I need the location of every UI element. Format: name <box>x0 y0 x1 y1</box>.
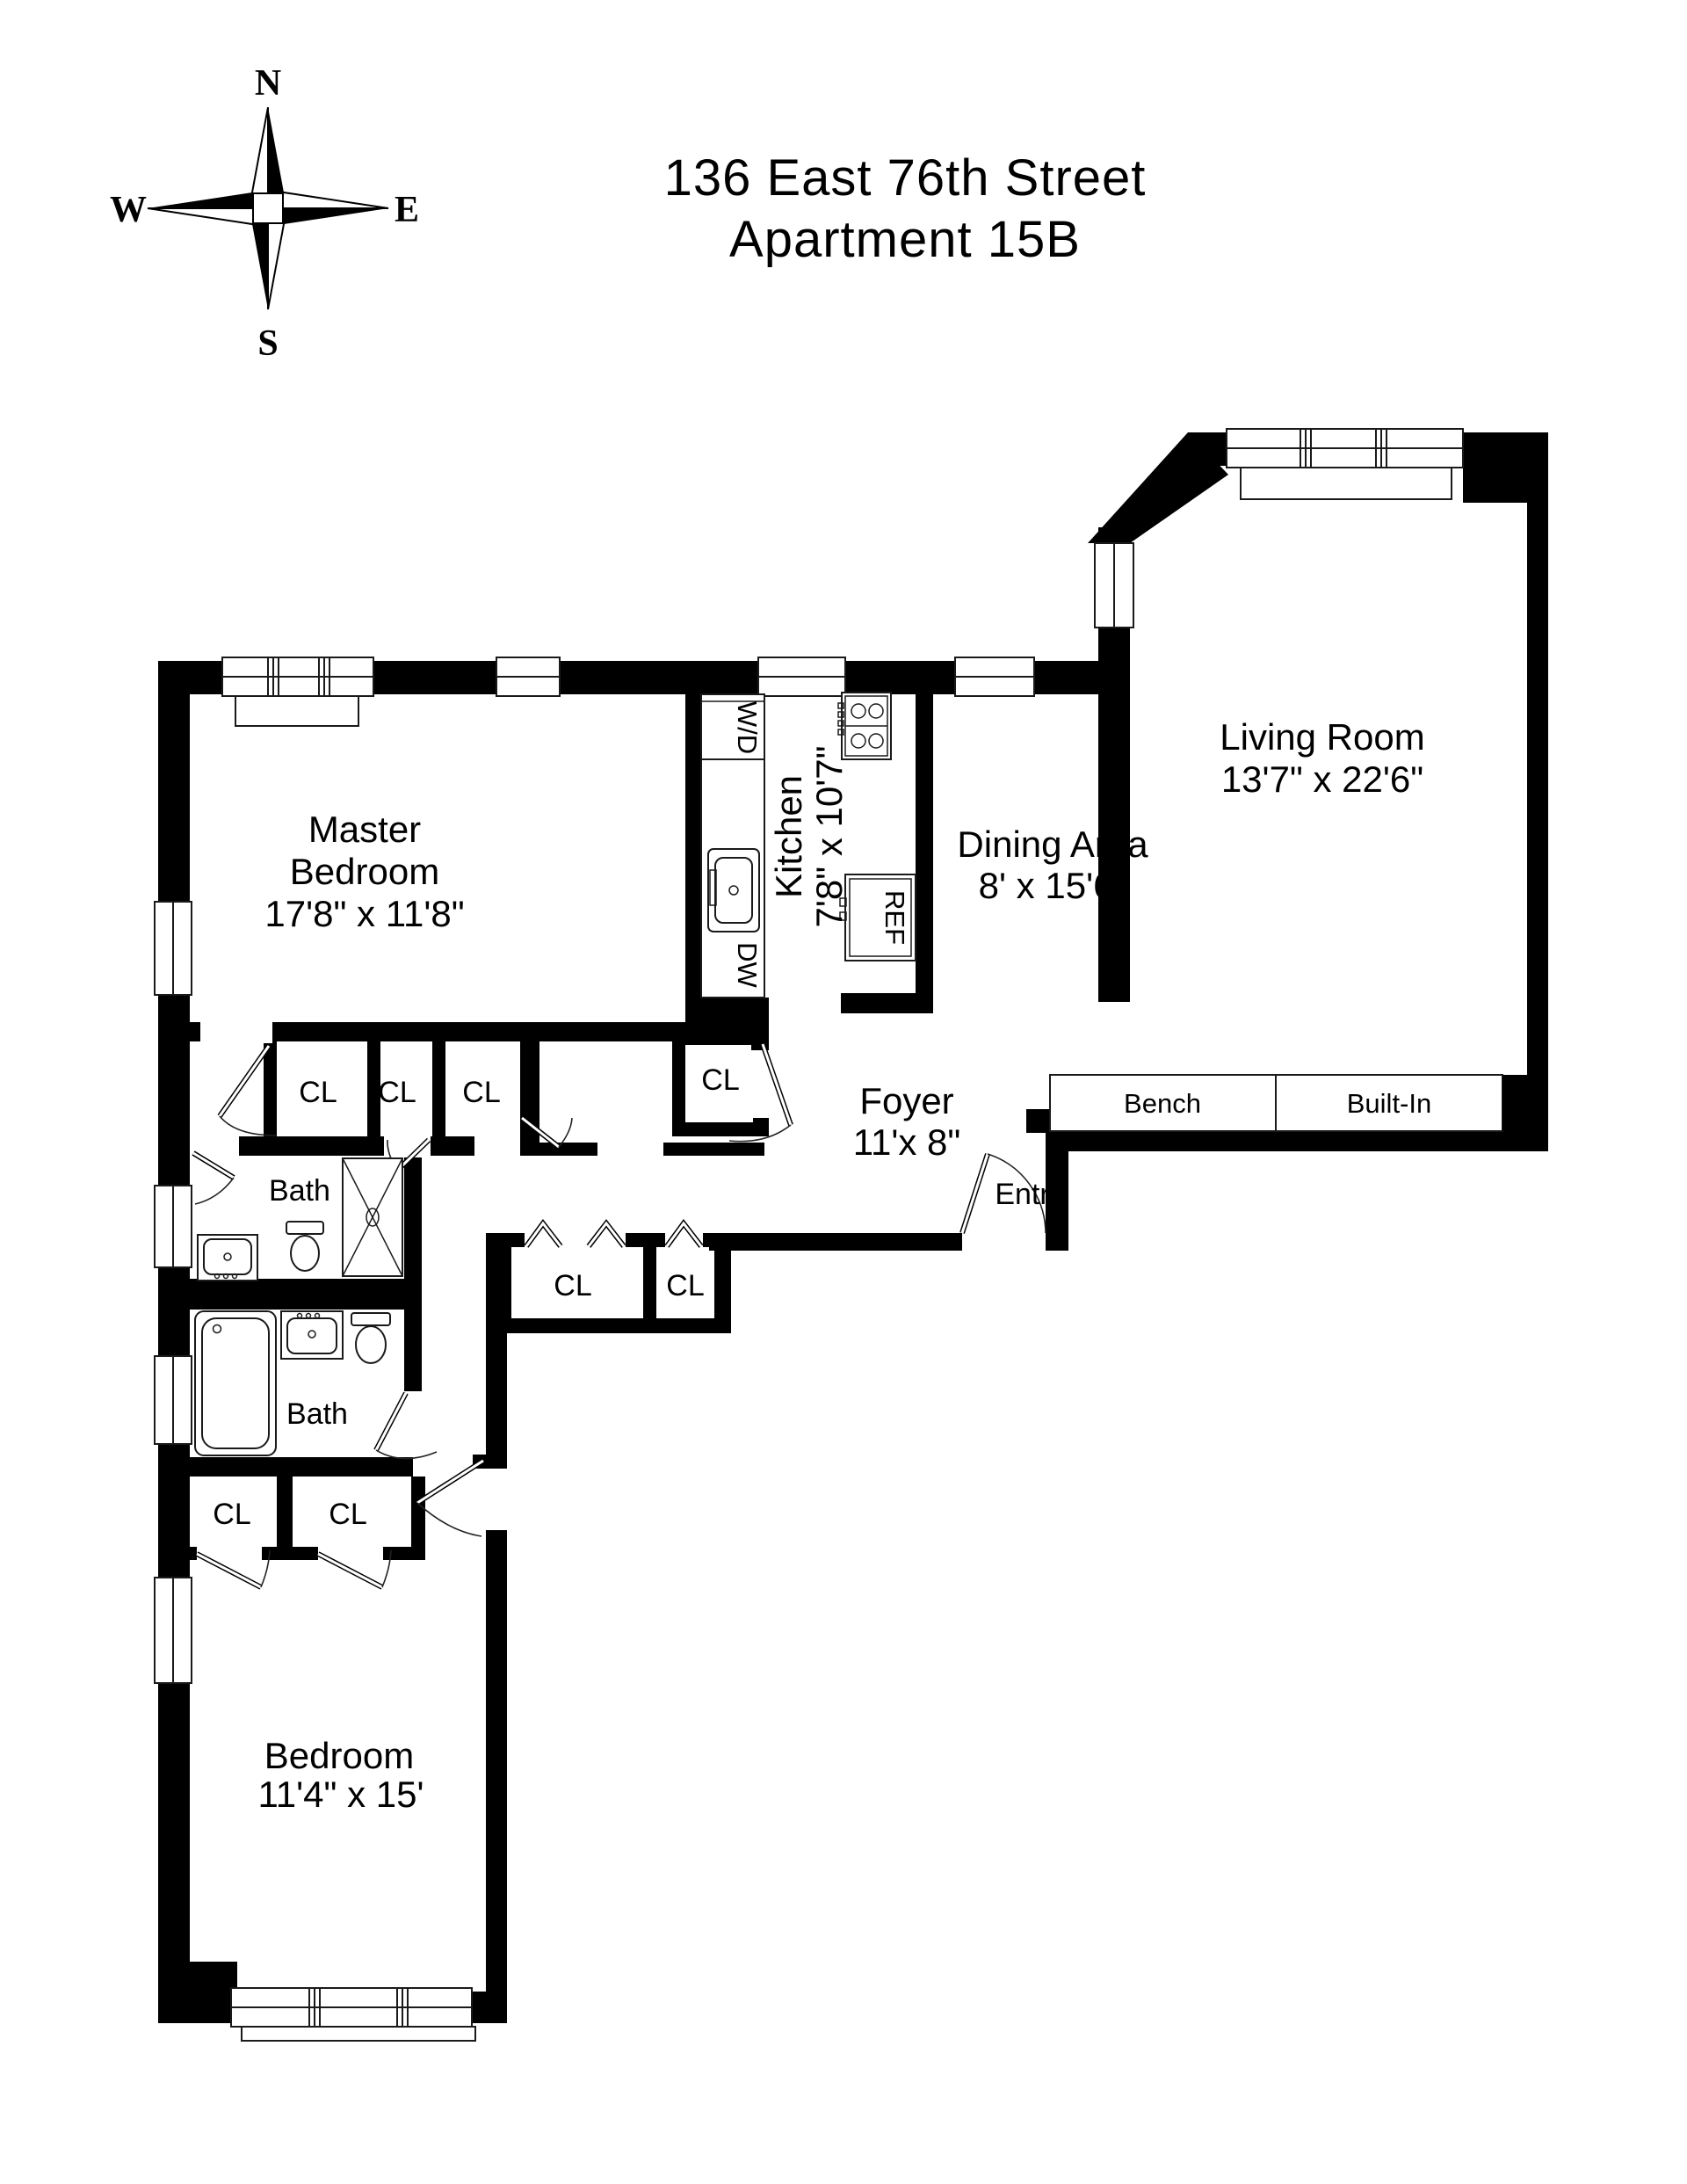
label-bath-upper: Bath <box>269 1174 330 1208</box>
sink-upper-icon <box>198 1235 257 1281</box>
label-foyer: Foyer 11'x 8" <box>853 1080 961 1163</box>
svg-text:Kitchen: Kitchen <box>768 775 809 898</box>
label-cl-vestibule-2: CL <box>666 1269 704 1302</box>
door-bath-upper-icon <box>193 1153 234 1204</box>
label-entry: Entry <box>995 1178 1064 1211</box>
svg-text:Bedroom: Bedroom <box>264 1735 414 1776</box>
compass-south-label: S <box>257 323 278 364</box>
floorplan-page: 136 East 76th Street Apartment 15B N S E… <box>0 0 1687 2184</box>
window-master-left-icon <box>155 902 192 995</box>
svg-text:Foyer: Foyer <box>859 1080 953 1121</box>
window-living-west-icon <box>1095 543 1133 628</box>
svg-text:13'7" x 22'6": 13'7" x 22'6" <box>1221 758 1423 800</box>
label-cl-row-2: CL <box>378 1076 416 1109</box>
floorplan-drawing: 136 East 76th Street Apartment 15B N S E… <box>0 0 1687 2184</box>
label-cl-bedroom-2: CL <box>329 1498 366 1531</box>
bathtub-icon <box>195 1311 276 1455</box>
label-kitchen: Kitchen 7'8" x 10'7" <box>768 746 850 928</box>
label-dishwasher: DW <box>732 942 763 988</box>
label-built-in: Built-In <box>1347 1088 1431 1119</box>
compass-east-label: E <box>395 190 419 230</box>
label-cl-row-1: CL <box>299 1076 337 1109</box>
compass-rose-icon: N S E W <box>110 63 419 364</box>
label-dining-area: Dining Area 8' x 15'6" <box>957 824 1148 906</box>
svg-text:8' x 15'6": 8' x 15'6" <box>979 865 1127 906</box>
shower-icon <box>343 1158 402 1276</box>
label-bedroom: Bedroom 11'4" x 15' <box>258 1735 424 1815</box>
svg-text:7'8" x 10'7": 7'8" x 10'7" <box>808 746 850 928</box>
window-master-top2-icon <box>496 657 560 696</box>
toilet-lower-icon <box>351 1313 390 1363</box>
label-cl-row-3: CL <box>462 1076 500 1109</box>
svg-text:Dining Area: Dining Area <box>957 824 1148 865</box>
label-bath-lower: Bath <box>286 1397 348 1431</box>
compass-north-label: N <box>255 63 281 104</box>
svg-text:Master: Master <box>308 809 421 850</box>
label-cl-foyer: CL <box>701 1063 739 1097</box>
window-bath-upper-icon <box>155 1186 192 1267</box>
label-cl-vestibule-1: CL <box>554 1269 591 1302</box>
sink-lower-icon <box>281 1311 343 1359</box>
window-kitchen-icon <box>758 657 845 696</box>
svg-text:11'4" x 15': 11'4" x 15' <box>258 1774 424 1815</box>
built-in-end-wall <box>1502 1075 1527 1131</box>
window-master-top-icon <box>222 657 373 726</box>
svg-text:Bedroom: Bedroom <box>290 851 439 892</box>
compass-west-label: W <box>110 190 147 230</box>
label-living-room: Living Room 13'7" x 22'6" <box>1220 716 1424 800</box>
plan-title: 136 East 76th Street Apartment 15B <box>664 149 1147 268</box>
svg-text:17'8" x 11'8": 17'8" x 11'8" <box>264 893 464 934</box>
label-bench: Bench <box>1124 1088 1201 1119</box>
window-bedroom-bottom-icon <box>231 1988 475 2041</box>
window-dining-icon <box>955 657 1034 696</box>
svg-text:11'x 8": 11'x 8" <box>853 1121 961 1163</box>
title-address: 136 East 76th Street <box>664 149 1147 207</box>
window-bath-lower-icon <box>155 1356 192 1444</box>
svg-text:Living Room: Living Room <box>1220 716 1424 758</box>
fixtures <box>195 693 1527 1455</box>
door-bedroom-icon <box>417 1461 483 1536</box>
title-apartment: Apartment 15B <box>729 211 1081 268</box>
bifold-doors-icon <box>526 1223 701 1246</box>
window-living-top-icon <box>1227 429 1463 499</box>
label-washer-dryer: W/D <box>732 701 763 754</box>
window-bedroom-left-icon <box>155 1578 192 1683</box>
label-cl-bedroom-1: CL <box>213 1498 250 1531</box>
toilet-upper-icon <box>286 1222 323 1271</box>
label-refrigerator: REF <box>880 890 910 945</box>
label-master-bedroom: Master Bedroom 17'8" x 11'8" <box>264 809 464 934</box>
